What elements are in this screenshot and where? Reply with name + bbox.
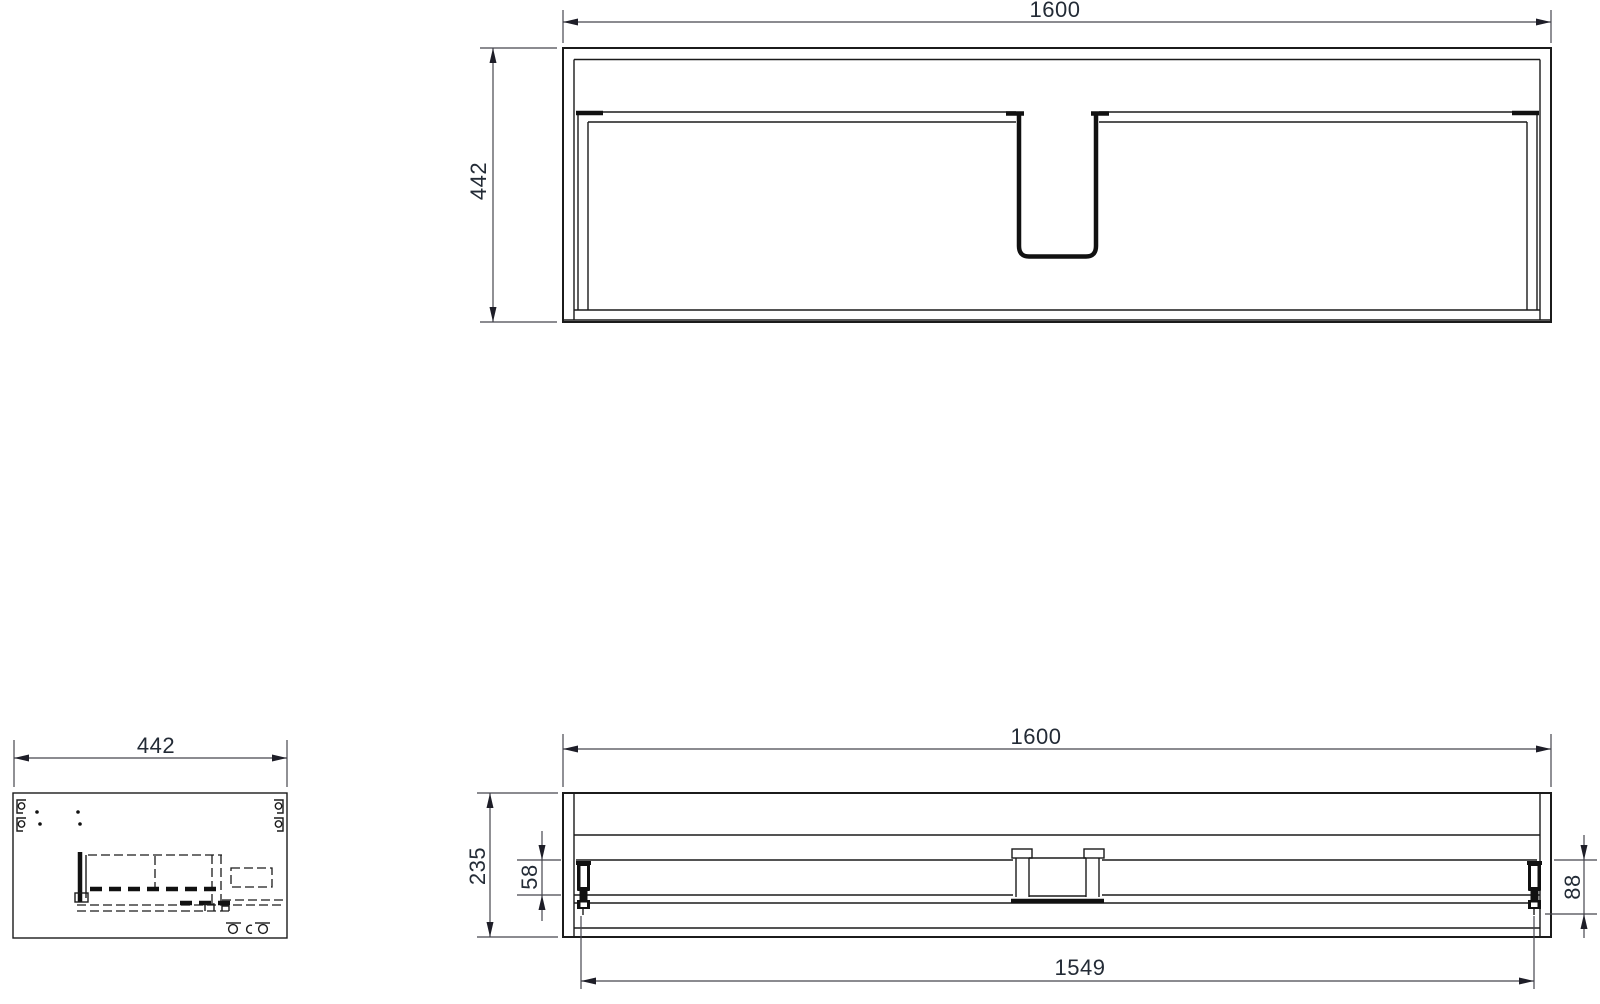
plan-sink-cutout xyxy=(1006,112,1109,257)
front-view: 1600 235 58 88 xyxy=(465,724,1597,989)
side-corner-hardware xyxy=(17,800,283,831)
front-sink-recess xyxy=(1011,846,1104,901)
front-dim-inner-width: 1549 xyxy=(581,916,1534,989)
plan-cabinet-outline xyxy=(563,48,1551,322)
front-right-slide-bracket xyxy=(1527,861,1542,915)
plan-dim-depth: 442 xyxy=(466,48,557,322)
front-width-label: 1600 xyxy=(1011,724,1062,749)
front-dim-height: 235 xyxy=(465,793,558,937)
side-panel-outline xyxy=(13,793,287,938)
plan-dim-width: 1600 xyxy=(563,0,1551,43)
side-dim-depth: 442 xyxy=(14,733,287,787)
plan-width-label: 1600 xyxy=(1030,0,1081,22)
side-drawer-runner-hidden-lines xyxy=(75,852,285,911)
front-inner-width-label: 1549 xyxy=(1055,955,1106,980)
plan-view: 1600 442 xyxy=(466,0,1551,322)
front-dim-drawer-offset: 58 xyxy=(517,831,561,921)
front-dim-width: 1600 xyxy=(563,724,1551,787)
side-bottom-hardware xyxy=(205,904,270,933)
plan-drawer-outline xyxy=(576,112,1539,310)
side-depth-label: 442 xyxy=(137,733,175,758)
technical-drawing-page: 1600 442 xyxy=(0,0,1600,1004)
front-slide-height-label: 88 xyxy=(1560,874,1585,899)
front-drawer-offset-label: 58 xyxy=(517,864,542,889)
technical-drawing-canvas: 1600 442 xyxy=(0,0,1600,1004)
plan-depth-label: 442 xyxy=(466,162,491,200)
side-view: 442 xyxy=(13,733,287,938)
front-left-slide-bracket xyxy=(576,861,591,915)
front-dim-slide-height: 88 xyxy=(1545,835,1597,938)
front-height-label: 235 xyxy=(465,847,490,885)
